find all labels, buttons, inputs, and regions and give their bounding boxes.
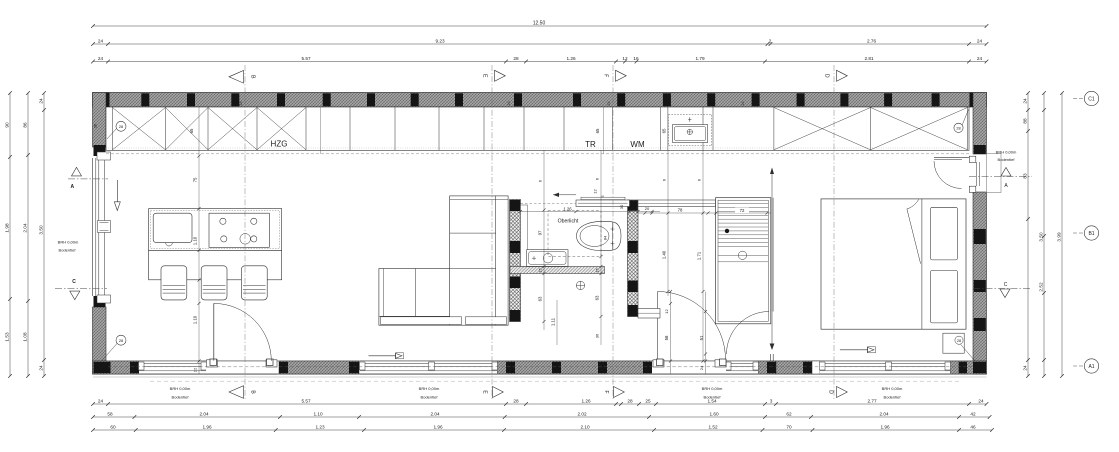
svg-text:28: 28 [513,56,519,61]
svg-text:3: 3 [770,398,773,403]
svg-text:6: 6 [697,179,702,181]
svg-text:65: 65 [662,128,667,133]
svg-text:Bodentief: Bodentief [59,247,77,252]
svg-text:15: 15 [538,268,543,273]
svg-text:65: 65 [189,128,194,133]
svg-text:D: D [824,74,830,78]
svg-text:2.77: 2.77 [867,398,877,403]
svg-text:28: 28 [627,398,633,403]
svg-text:86: 86 [23,122,28,128]
svg-text:2.76: 2.76 [867,38,877,43]
svg-text:1.96: 1.96 [433,424,443,429]
svg-text:2.52: 2.52 [1039,282,1044,292]
svg-text:WM: WM [630,140,645,149]
svg-text:F: F [603,74,609,77]
svg-text:75: 75 [193,177,198,182]
svg-text:3.99: 3.99 [1057,232,1062,242]
svg-text:28: 28 [957,338,961,343]
svg-text:C: C [1004,282,1008,288]
svg-text:63: 63 [538,296,543,301]
svg-text:BRH 0,00m: BRH 0,00m [419,386,440,391]
svg-text:24: 24 [98,56,104,61]
svg-text:2.02: 2.02 [577,411,587,416]
svg-text:D: D [828,390,834,394]
svg-text:83: 83 [1023,173,1028,179]
svg-text:16: 16 [633,56,639,61]
svg-text:1.71: 1.71 [697,251,702,260]
svg-text:88: 88 [1023,118,1028,124]
svg-text:16: 16 [632,206,637,211]
svg-text:28: 28 [956,125,960,130]
svg-text:97: 97 [538,230,543,235]
svg-text:1.08: 1.08 [23,332,28,342]
svg-text:12: 12 [622,56,628,61]
svg-text:HZG: HZG [271,140,288,149]
svg-text:1.26: 1.26 [566,56,576,61]
svg-text:6: 6 [595,178,600,180]
svg-text:42: 42 [970,411,976,416]
svg-text:2.04: 2.04 [430,411,440,416]
svg-text:63: 63 [595,295,600,300]
svg-text:24: 24 [98,398,104,403]
svg-text:62: 62 [786,411,792,416]
svg-text:15: 15 [595,268,600,273]
svg-text:28: 28 [119,338,123,343]
svg-text:90: 90 [5,122,10,128]
svg-text:BRH 0,00m: BRH 0,00m [58,240,79,245]
svg-text:24: 24 [98,38,104,43]
svg-text:36: 36 [595,333,600,338]
svg-text:46: 46 [970,424,976,429]
svg-text:6: 6 [538,180,543,182]
svg-text:5.57: 5.57 [301,56,311,61]
svg-text:78: 78 [678,208,683,213]
svg-text:70: 70 [786,424,792,429]
svg-text:58: 58 [664,335,669,340]
svg-text:3.50: 3.50 [39,225,44,235]
svg-text:24: 24 [699,365,704,370]
svg-text:1.53: 1.53 [5,332,10,342]
svg-text:2: 2 [769,38,772,43]
svg-text:12: 12 [664,309,669,314]
svg-text:25: 25 [645,398,651,403]
svg-text:36: 36 [93,124,98,128]
svg-text:1.26: 1.26 [563,207,572,212]
svg-text:84: 84 [603,235,608,240]
svg-text:1.96: 1.96 [202,424,212,429]
svg-text:Bodentief: Bodentief [421,395,439,400]
svg-text:28: 28 [119,124,123,129]
svg-text:1.26: 1.26 [581,398,591,403]
svg-text:1.10: 1.10 [193,315,198,324]
svg-text:2.04: 2.04 [879,411,889,416]
svg-text:28: 28 [513,398,519,403]
svg-text:1.54: 1.54 [707,398,717,403]
svg-text:24: 24 [39,98,44,104]
svg-text:12: 12 [593,189,598,194]
svg-text:BRH 0,00m: BRH 0,00m [702,386,723,391]
svg-text:1.23: 1.23 [315,424,325,429]
svg-text:Bodentief: Bodentief [172,395,190,400]
svg-text:2.04: 2.04 [23,223,28,233]
svg-text:72: 72 [740,208,745,213]
svg-text:2.10: 2.10 [580,424,590,429]
svg-text:1.52: 1.52 [708,424,718,429]
svg-text:5: 5 [600,195,605,197]
svg-text:Oberlicht: Oberlicht [558,219,579,225]
svg-text:24: 24 [39,365,44,371]
svg-text:12.50: 12.50 [533,20,546,26]
svg-text:30: 30 [619,204,624,209]
svg-text:BRH 0,00m: BRH 0,00m [170,386,191,391]
svg-text:1.98: 1.98 [5,223,10,233]
svg-text:5.57: 5.57 [301,398,311,403]
svg-text:51: 51 [699,335,704,340]
svg-text:20: 20 [645,206,650,211]
svg-text:24: 24 [1023,365,1028,371]
svg-text:A: A [70,184,74,190]
svg-text:60: 60 [110,424,116,429]
svg-text:24: 24 [977,38,983,43]
svg-text:24: 24 [977,56,983,61]
svg-text:65: 65 [595,128,600,133]
svg-text:1.11: 1.11 [551,317,556,326]
svg-text:BRH 0,00m: BRH 0,00m [882,386,903,391]
svg-text:2.04: 2.04 [199,411,209,416]
svg-text:BRH 0,00m: BRH 0,00m [996,150,1017,155]
svg-text:A1: A1 [1088,364,1094,370]
svg-text:1.10: 1.10 [313,411,323,416]
svg-text:58: 58 [107,411,113,416]
svg-text:24: 24 [978,398,984,403]
svg-text:9.23: 9.23 [435,38,445,43]
svg-text:TR: TR [585,140,596,149]
svg-text:Bodentief: Bodentief [884,395,902,400]
svg-text:C1: C1 [1088,96,1095,102]
svg-text:22: 22 [193,367,198,372]
svg-text:Bodentief: Bodentief [998,157,1016,162]
svg-text:1.96: 1.96 [880,424,890,429]
svg-text:2.81: 2.81 [864,56,874,61]
svg-text:1.40: 1.40 [662,250,667,259]
svg-text:6: 6 [662,179,667,181]
svg-text:1.10: 1.10 [193,236,198,245]
svg-text:3.50: 3.50 [1039,232,1044,242]
svg-text:B1: B1 [1088,231,1094,237]
svg-text:F: F [603,390,609,393]
svg-text:C: C [72,279,76,285]
svg-text:24: 24 [1023,98,1028,104]
svg-text:1.79: 1.79 [695,56,705,61]
svg-text:1.60: 1.60 [709,411,719,416]
